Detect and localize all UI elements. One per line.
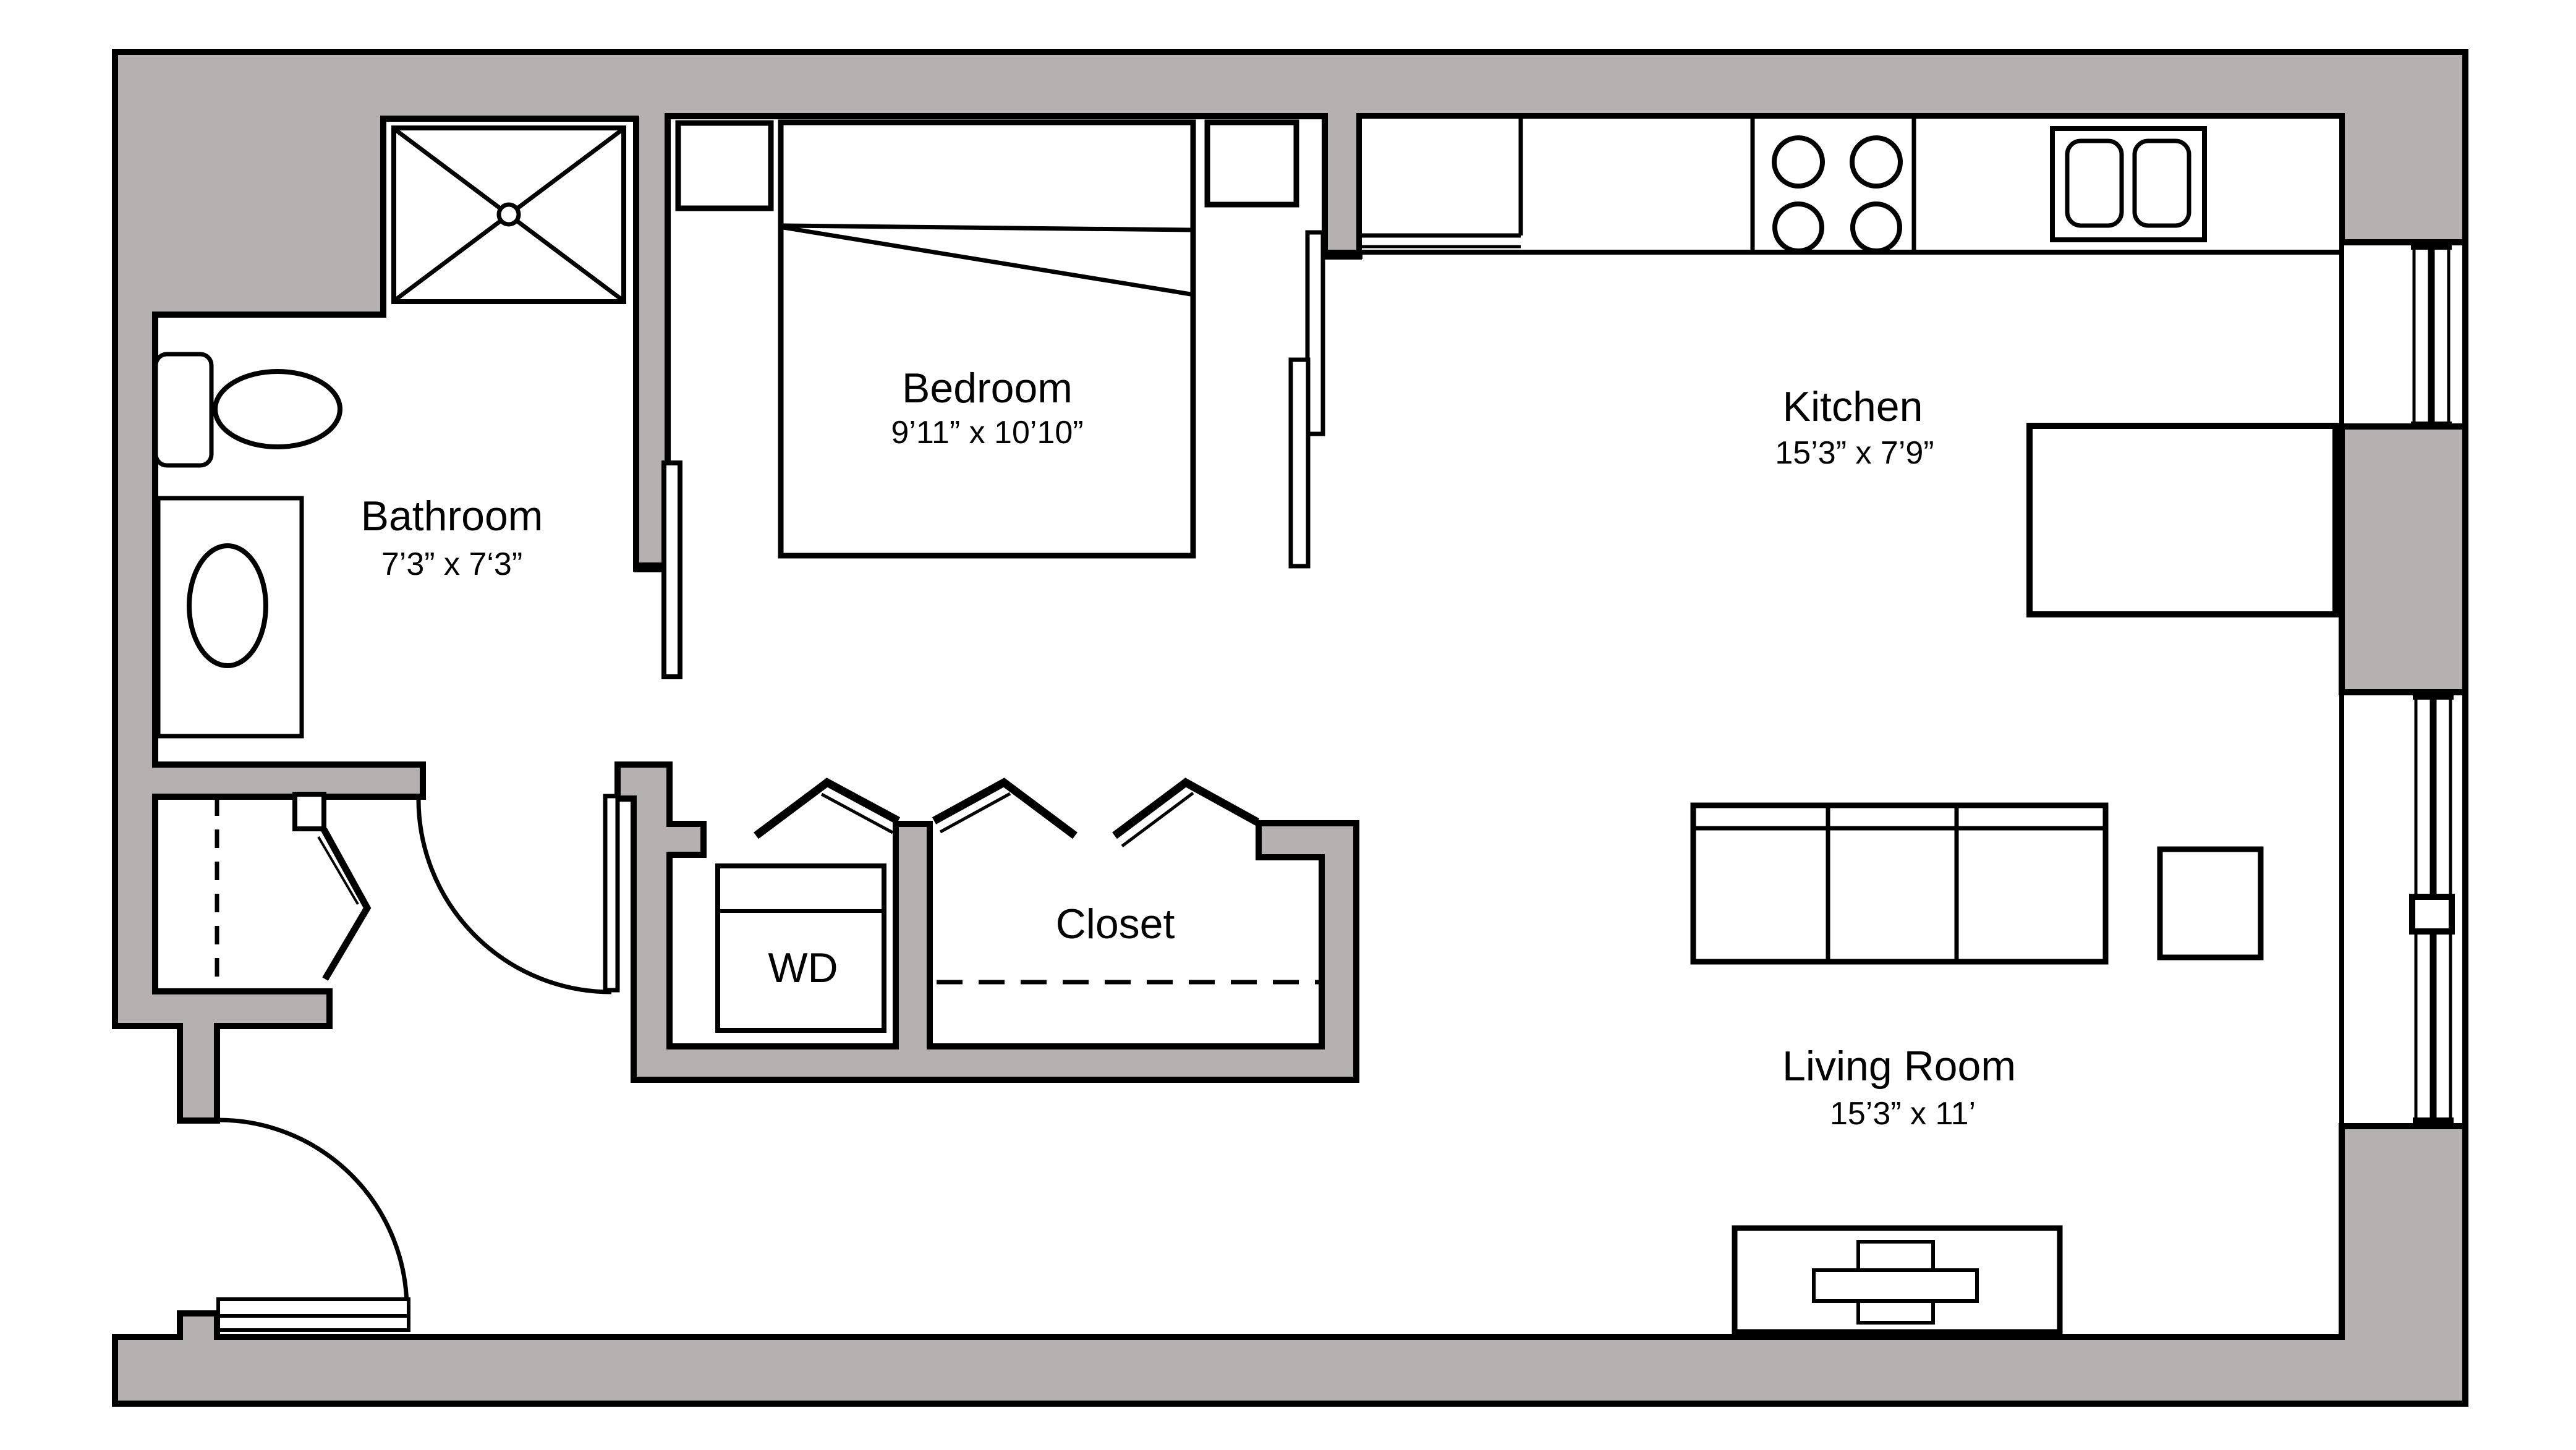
svg-text:9’11” x 10’10”: 9’11” x 10’10” [891, 415, 1083, 451]
svg-text:WD: WD [768, 944, 838, 991]
svg-text:Living Room: Living Room [1782, 1043, 2016, 1090]
svg-text:Bathroom: Bathroom [361, 493, 543, 540]
svg-text:Closet: Closet [1056, 901, 1175, 948]
svg-text:15’3” x 7’9”: 15’3” x 7’9” [1775, 435, 1934, 471]
svg-text:Bedroom: Bedroom [902, 365, 1073, 412]
svg-text:15’3” x 11’: 15’3” x 11’ [1830, 1096, 1976, 1132]
svg-text:7’3” x 7‘3”: 7’3” x 7‘3” [381, 546, 522, 582]
svg-text:Kitchen: Kitchen [1783, 383, 1923, 430]
